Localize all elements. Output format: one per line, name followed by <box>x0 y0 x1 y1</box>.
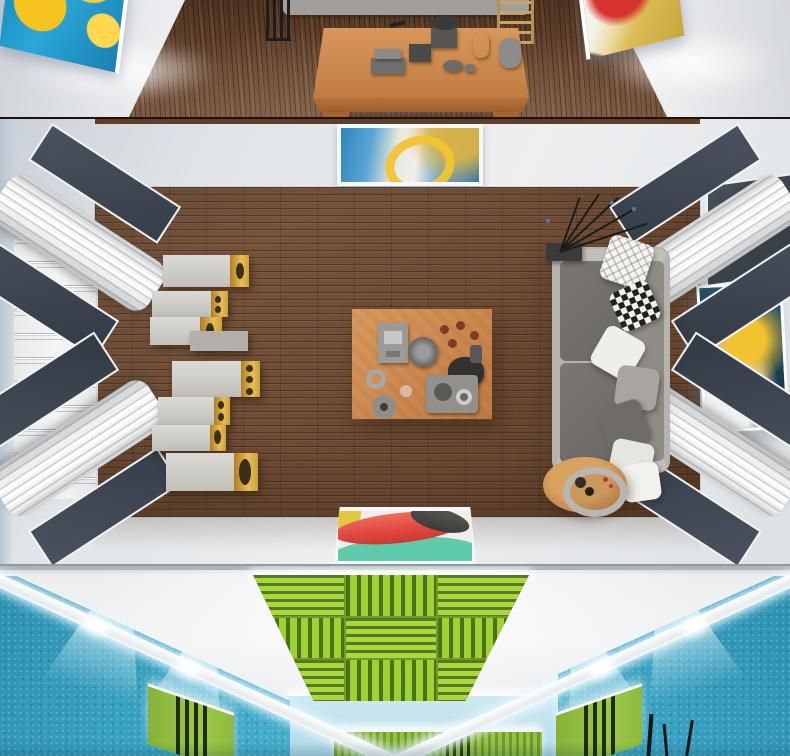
table-top-face <box>313 28 529 98</box>
yellow-ring-stroke <box>379 128 461 182</box>
ring-dish <box>366 369 386 389</box>
speaker-5 <box>172 361 260 397</box>
speaker-port <box>246 388 253 395</box>
magazine-rack <box>266 0 291 41</box>
bowl-dark <box>434 383 452 401</box>
coffee-table <box>352 309 492 419</box>
slat-cell-vertical <box>438 618 529 659</box>
speaker-port <box>218 401 224 409</box>
planter-box <box>431 28 457 48</box>
slat-grid <box>253 575 529 701</box>
teacup <box>470 331 479 340</box>
amplifier <box>378 323 408 363</box>
speaker-port <box>239 459 251 485</box>
slat-cell-vertical <box>346 575 437 616</box>
teacup <box>440 325 449 334</box>
branch-tip <box>632 207 636 211</box>
plate <box>372 395 396 419</box>
vase <box>473 32 489 58</box>
small-pink-dish <box>400 385 412 397</box>
red-berry <box>609 484 613 488</box>
table-front-edge <box>313 98 529 112</box>
bottom-room-photo <box>0 566 790 756</box>
speaker-7 <box>152 425 226 451</box>
speaker-port <box>236 263 244 279</box>
pitcher <box>470 345 482 363</box>
decor-box-stack <box>371 58 405 74</box>
ceiling-acoustic-panel <box>253 575 529 701</box>
speaker-port <box>215 306 221 313</box>
teacup <box>448 339 457 348</box>
frame-edge <box>0 566 790 570</box>
branch-tip <box>546 219 550 223</box>
decor-box <box>375 49 401 59</box>
speaker-gold-front <box>211 291 228 317</box>
slat-cell-horizontal <box>438 575 529 616</box>
branch-tip <box>610 201 614 205</box>
painting-canvas <box>338 511 472 561</box>
painting-top-abstract <box>337 124 483 186</box>
plant-foliage <box>431 16 459 30</box>
speaker-gold-front <box>210 425 226 451</box>
plate-center <box>380 403 388 411</box>
speaker-port <box>246 365 253 372</box>
slat-cell-horizontal <box>253 575 344 616</box>
speaker-gold-front <box>214 397 230 425</box>
sofa-edge <box>283 0 529 15</box>
speaker-4 <box>190 331 248 351</box>
tray-item <box>575 477 586 488</box>
speaker-gold-front <box>230 255 249 287</box>
bird-figurine <box>389 20 405 28</box>
ring-tray <box>563 467 627 517</box>
speaker-2 <box>152 291 228 317</box>
serving-tray <box>426 375 478 413</box>
slat-cell-horizontal <box>346 618 437 659</box>
speaker-6 <box>158 397 230 425</box>
render-collage <box>0 0 790 756</box>
bowl <box>443 60 463 72</box>
painting-bottom-abstract <box>334 507 476 565</box>
amplifier-controls <box>386 351 400 357</box>
teacup <box>456 321 465 330</box>
bottom-vignette <box>0 742 790 756</box>
slat-cell-vertical <box>346 660 437 701</box>
speaker-port <box>214 430 221 444</box>
speaker-1 <box>163 255 249 287</box>
bowl-light <box>456 389 472 405</box>
vase-large <box>499 38 521 68</box>
speaker-gold-front <box>234 453 258 491</box>
decor-box-dark <box>409 44 431 62</box>
coffee-table <box>313 20 529 119</box>
sofa <box>552 247 670 473</box>
amplifier-screen <box>384 331 402 344</box>
speaker-port <box>215 296 221 303</box>
teapot <box>408 337 438 367</box>
top-room-photo <box>0 0 790 119</box>
slat-cell-vertical <box>253 618 344 659</box>
red-berry <box>603 477 608 482</box>
tray-item <box>585 487 594 496</box>
speaker-gold-front <box>241 361 260 397</box>
speaker-8 <box>166 453 258 491</box>
side-table <box>543 457 627 513</box>
cup <box>465 64 475 72</box>
branch-sculpture <box>546 205 656 269</box>
speaker-port <box>246 376 253 383</box>
speaker-port <box>218 413 224 421</box>
middle-room-photo <box>0 119 790 566</box>
painting-canvas <box>341 128 479 182</box>
